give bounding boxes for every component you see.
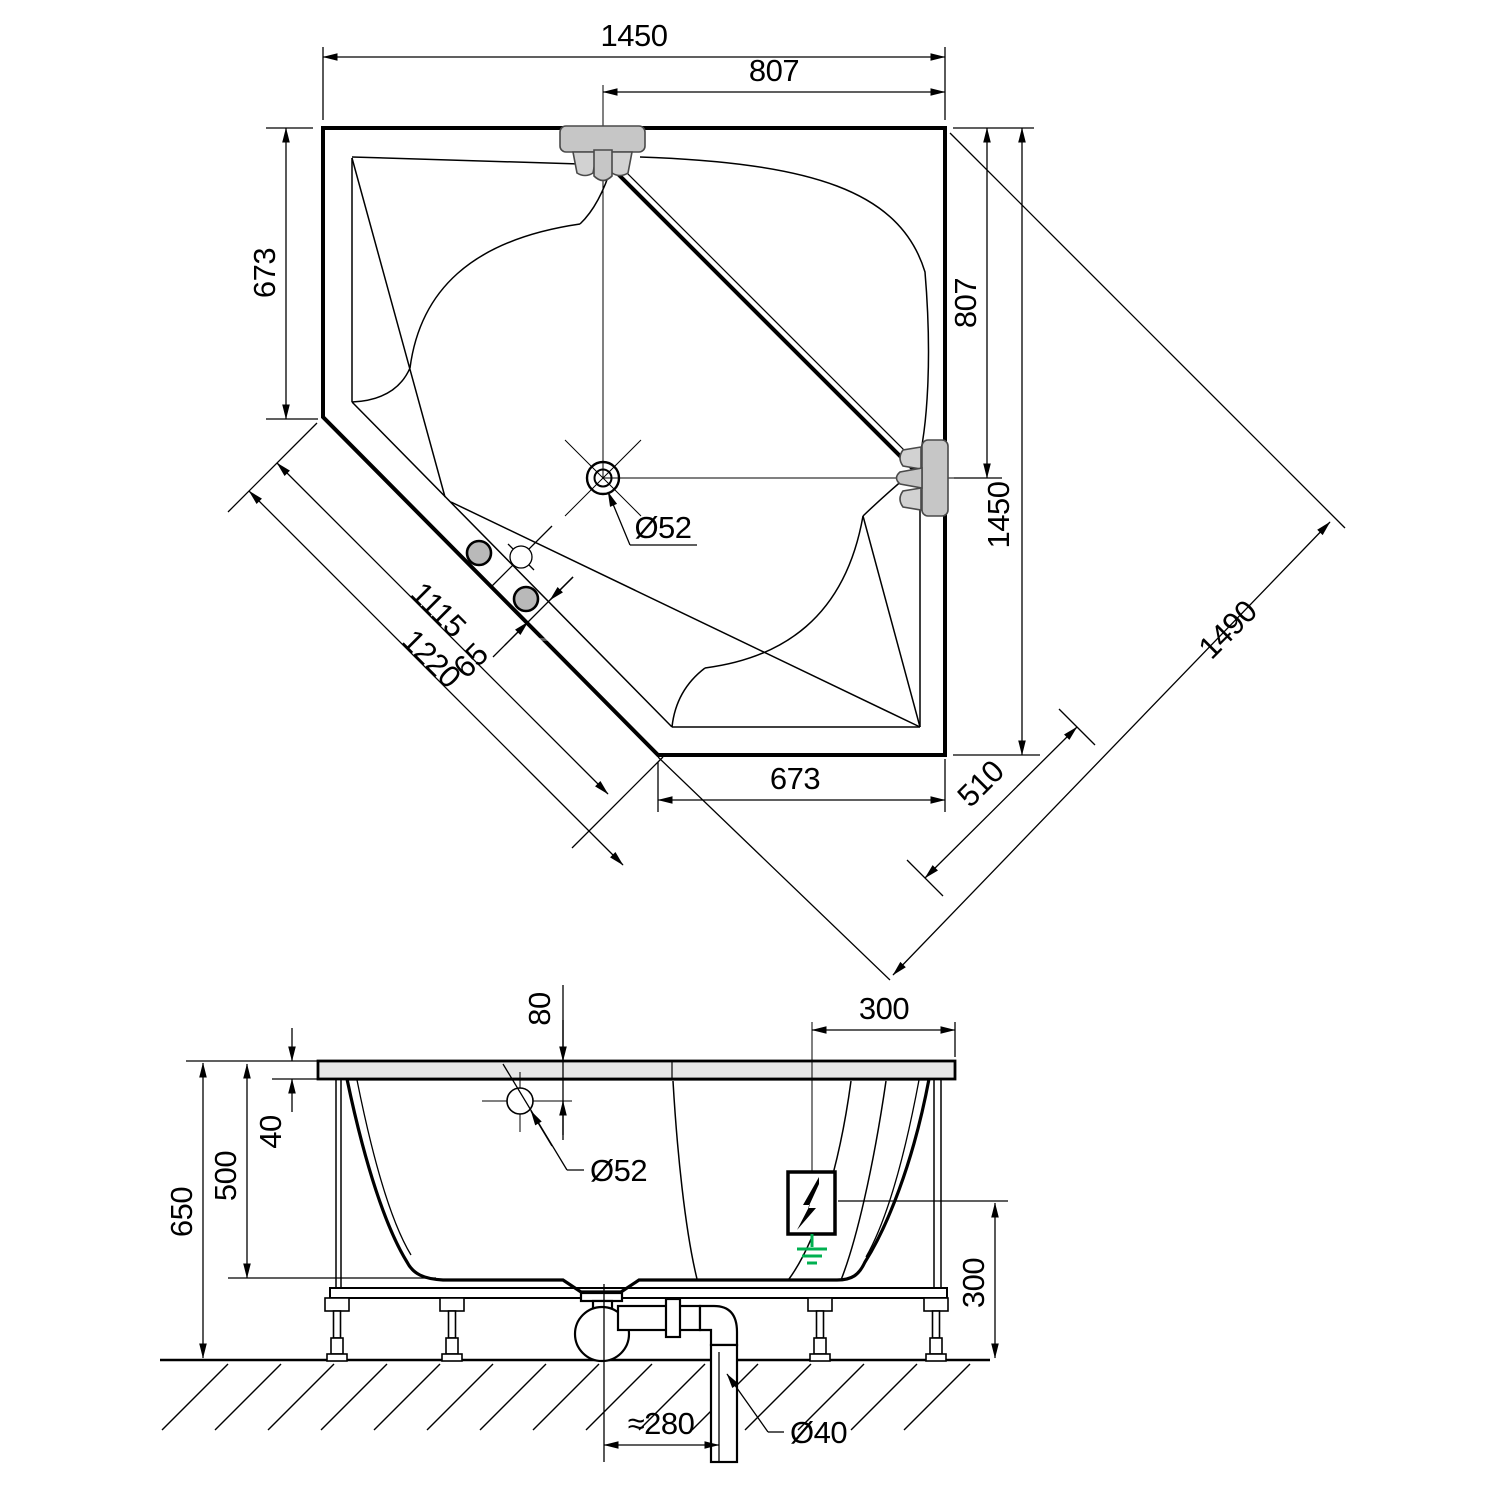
dim-drain-diameter: Ø52 — [608, 492, 697, 545]
deck-rim — [318, 1061, 955, 1079]
side-view: 80 300 40 500 650 300 ≈280 — [160, 985, 1008, 1462]
dim-overflow-diameter: Ø52 — [503, 1064, 647, 1188]
dim-label: Ø52 — [590, 1153, 647, 1188]
dim-total-height: 650 — [164, 1063, 203, 1358]
dim-overall-width: 1450 — [323, 18, 945, 57]
dim-left-edge: 673 — [247, 128, 286, 419]
dim-cut-edge-overall: 1220 — [249, 491, 623, 865]
whirlpool-jet-icon — [467, 541, 491, 565]
dim-corner-offset: 510 — [925, 727, 1077, 878]
dim-pipe-diameter: Ø40 — [727, 1374, 847, 1450]
dim-label: 500 — [208, 1151, 243, 1201]
side-faucet-icon — [897, 440, 949, 516]
dim-cut-edge-length: 1115 — [277, 463, 608, 794]
top-view: 1450 807 673 807 1450 673 1115 1220 — [228, 18, 1345, 980]
deck-faucet-icon — [560, 126, 645, 181]
adjustable-foot — [440, 1298, 464, 1361]
dim-label: ≈280 — [628, 1406, 695, 1441]
dim-label: 673 — [247, 248, 282, 298]
whirlpool-jet-icon — [514, 587, 538, 611]
dim-label: 1450 — [981, 481, 1016, 548]
dim-label: 673 — [770, 761, 820, 796]
dim-label: 300 — [956, 1258, 991, 1308]
drawing-canvas: 1450 807 673 807 1450 673 1115 1220 — [0, 0, 1500, 1500]
dim-label: 510 — [950, 753, 1010, 813]
diagonal-edge-line — [612, 168, 918, 474]
dim-label: 80 — [522, 992, 557, 1026]
dim-trap-offset: ≈280 — [604, 1406, 719, 1445]
adjustable-foot — [325, 1298, 349, 1361]
technical-drawing: 1450 807 673 807 1450 673 1115 1220 — [0, 0, 1500, 1500]
adjustable-foot — [924, 1298, 948, 1361]
dim-label: 807 — [749, 53, 799, 88]
dim-label: 807 — [948, 278, 983, 328]
dim-faucet-offset: 807 — [603, 53, 945, 92]
adjustable-foot — [808, 1298, 832, 1361]
floor-hatch — [162, 1364, 970, 1430]
dim-label: Ø40 — [790, 1415, 847, 1450]
dim-inner-depth: 500 — [208, 1064, 247, 1278]
extension-lines — [228, 47, 1345, 980]
dim-label: 1450 — [601, 18, 668, 53]
dim-label: 300 — [859, 991, 909, 1026]
dim-diag-clearance: 1490 — [893, 522, 1330, 975]
dim-connection-height: 300 — [956, 1203, 995, 1358]
support-frame — [330, 1288, 947, 1298]
dim-right-faucet-offset: 807 — [948, 128, 987, 478]
dim-label: 40 — [253, 1115, 288, 1149]
electrical-box-icon — [788, 1172, 835, 1234]
dim-label: Ø52 — [634, 510, 691, 545]
dim-bottom-edge: 673 — [658, 761, 945, 800]
dim-rim-height: 40 — [253, 1028, 292, 1149]
dim-label: 650 — [164, 1187, 199, 1237]
dim-deck-width: 300 — [812, 991, 955, 1030]
dim-rim-width: 65 — [446, 577, 573, 685]
overflow-icon — [482, 1072, 572, 1132]
